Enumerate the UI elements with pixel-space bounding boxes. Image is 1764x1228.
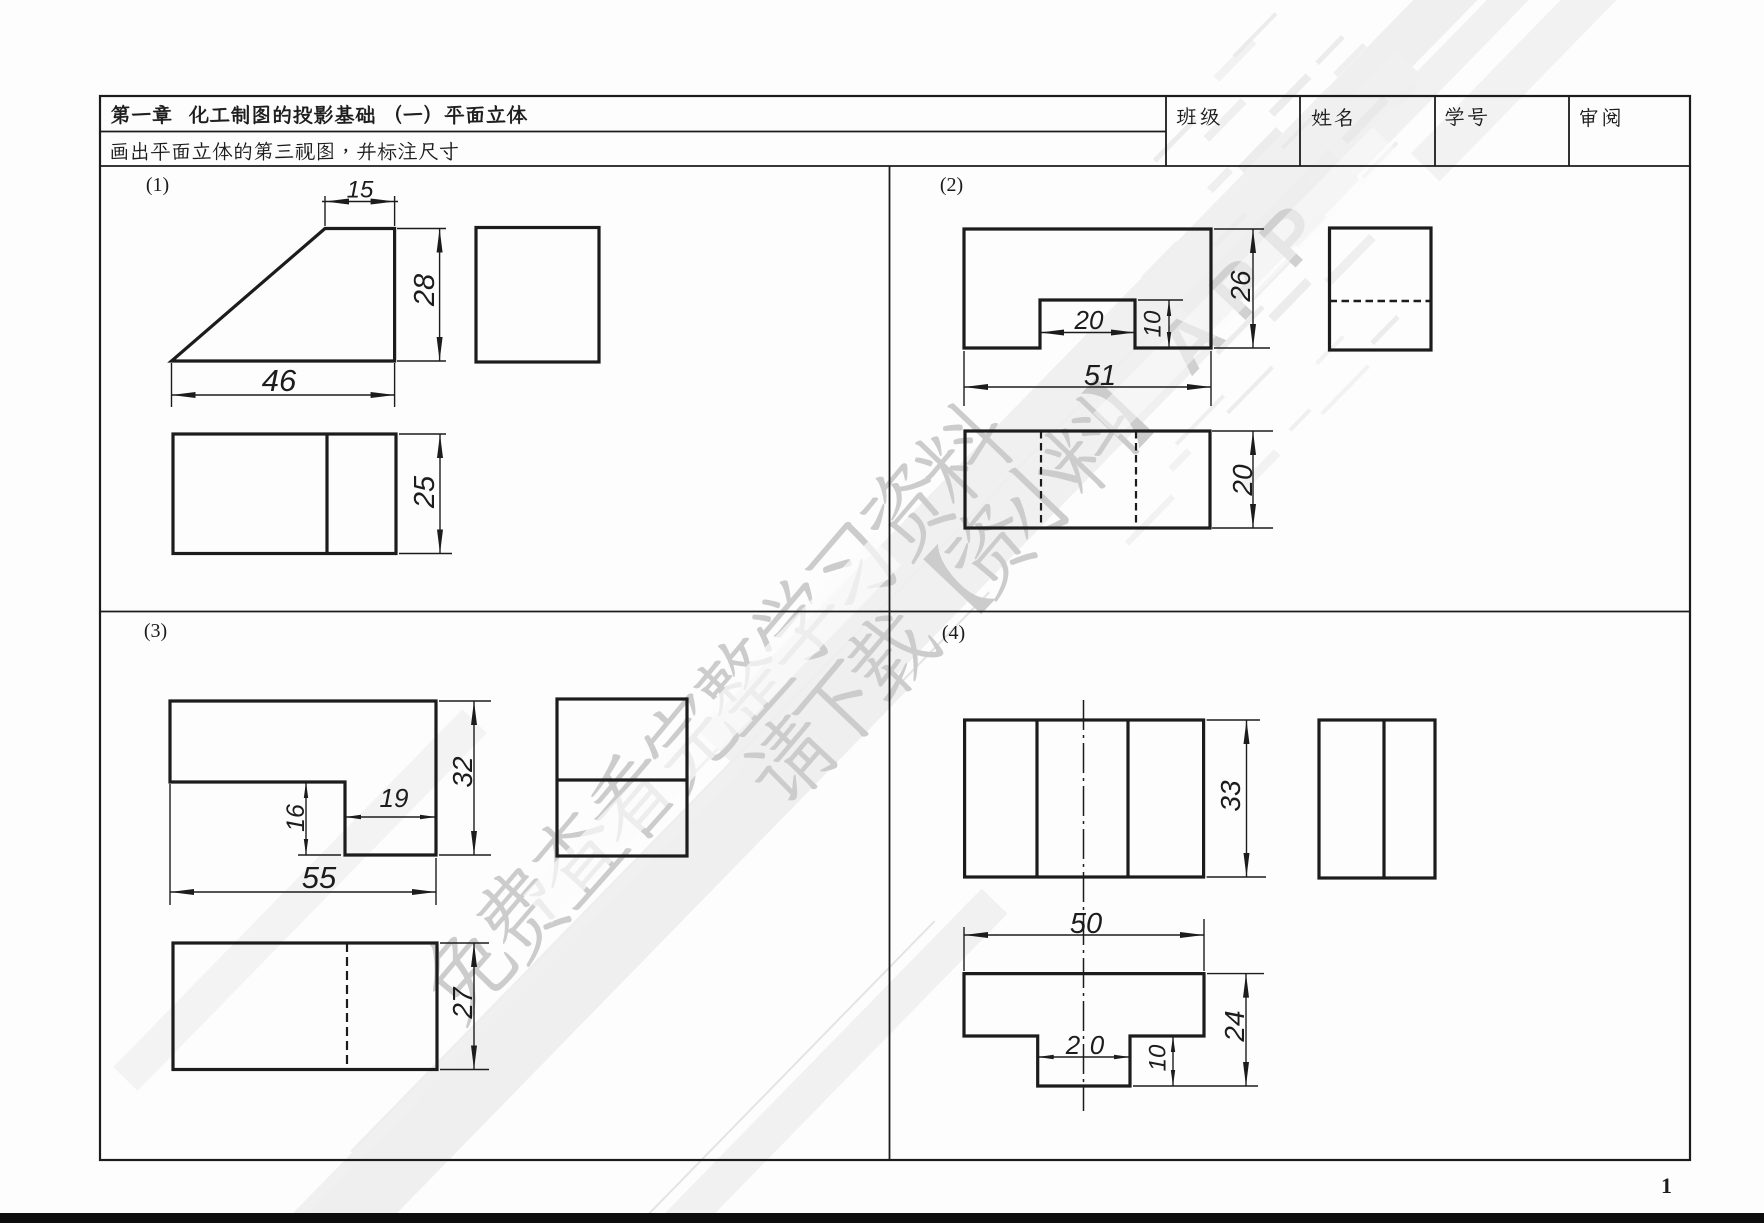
svg-text:10: 10	[1139, 310, 1166, 337]
svg-text:28: 28	[409, 274, 441, 307]
svg-text:46: 46	[262, 363, 297, 398]
svg-text:55: 55	[302, 860, 337, 895]
svg-text:(3): (3)	[144, 620, 167, 642]
svg-text:24: 24	[1219, 1010, 1250, 1042]
svg-text:32: 32	[447, 756, 478, 788]
svg-text:50: 50	[1070, 908, 1102, 940]
svg-text:1: 1	[1661, 1173, 1672, 1198]
svg-text:(2): (2)	[940, 174, 963, 196]
svg-text:(1): (1)	[146, 174, 169, 196]
svg-text:25: 25	[409, 475, 441, 509]
svg-text:2: 2	[1065, 1030, 1081, 1060]
svg-text:20: 20	[1227, 464, 1258, 497]
svg-text:26: 26	[1225, 270, 1256, 303]
svg-text:19: 19	[380, 783, 409, 813]
svg-text:15: 15	[347, 176, 374, 203]
svg-text:20: 20	[1074, 305, 1104, 335]
svg-text:(4): (4)	[942, 622, 965, 644]
svg-text:0: 0	[1090, 1030, 1105, 1060]
svg-text:33: 33	[1215, 780, 1246, 812]
svg-text:16: 16	[282, 804, 310, 832]
svg-text:10: 10	[1144, 1044, 1171, 1071]
svg-text:27: 27	[447, 986, 478, 1020]
svg-text:51: 51	[1084, 360, 1116, 392]
